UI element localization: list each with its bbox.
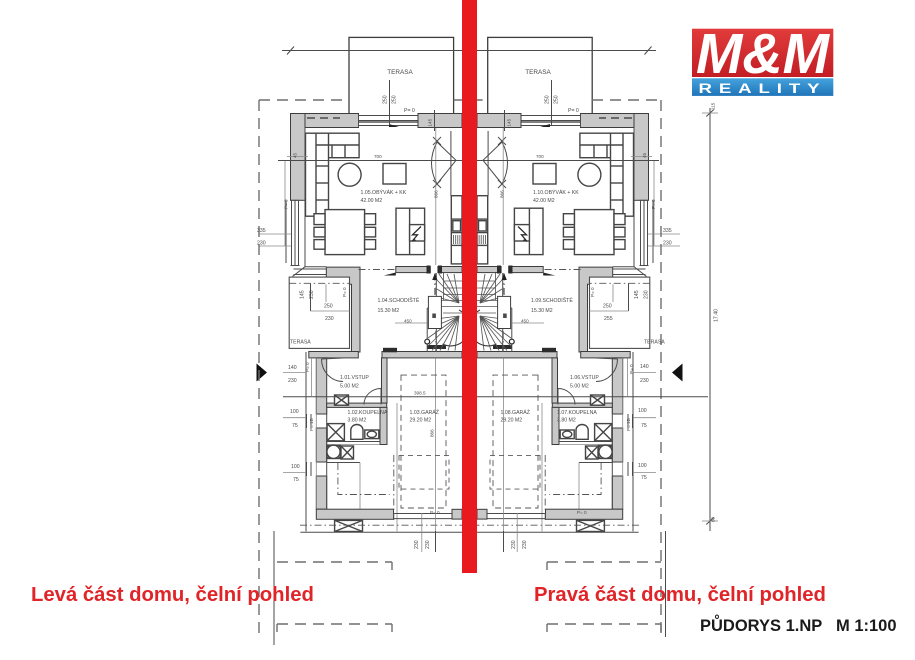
- svg-text:866: 866: [430, 429, 435, 437]
- svg-text:230: 230: [644, 290, 650, 299]
- svg-text:P= 0: P= 0: [590, 287, 595, 297]
- svg-text:P= 0: P= 0: [404, 108, 415, 114]
- svg-text:P= 0: P= 0: [629, 364, 634, 374]
- svg-text:P= 0: P= 0: [284, 199, 289, 209]
- svg-text:335: 335: [257, 228, 266, 234]
- svg-text:P= 0: P= 0: [430, 510, 440, 515]
- svg-text:60: 60: [711, 516, 716, 522]
- svg-text:3.80 M2: 3.80 M2: [348, 418, 367, 424]
- svg-text:1.04.SCHODIŠTĚ: 1.04.SCHODIŠTĚ: [378, 296, 420, 304]
- svg-text:TERASA: TERASA: [525, 69, 551, 76]
- svg-text:230: 230: [511, 540, 517, 549]
- svg-text:100: 100: [638, 408, 647, 414]
- svg-text:145: 145: [634, 290, 640, 299]
- svg-text:1.10.OBÝVÁK + KK: 1.10.OBÝVÁK + KK: [533, 189, 579, 196]
- svg-text:P= 0: P= 0: [651, 199, 656, 209]
- svg-text:866: 866: [434, 190, 439, 198]
- svg-text:145: 145: [300, 290, 306, 299]
- svg-text:230: 230: [325, 316, 334, 322]
- svg-text:5.00 M2: 5.00 M2: [340, 384, 359, 390]
- svg-text:P= 1B: P= 1B: [626, 418, 631, 431]
- svg-text:42.00 M2: 42.00 M2: [533, 198, 555, 204]
- svg-text:1.07.KOUPELNA: 1.07.KOUPELNA: [557, 410, 597, 416]
- svg-text:230: 230: [640, 378, 649, 384]
- svg-text:145: 145: [507, 118, 512, 126]
- svg-text:REALITY: REALITY: [699, 81, 827, 96]
- svg-text:100: 100: [290, 409, 299, 415]
- svg-text:75: 75: [292, 423, 298, 429]
- svg-text:230: 230: [288, 378, 297, 384]
- svg-text:Pravá část domu, čelní pohled: Pravá část domu, čelní pohled: [534, 584, 826, 606]
- svg-text:250: 250: [324, 304, 333, 310]
- svg-text:230: 230: [257, 241, 266, 247]
- svg-text:700: 700: [374, 154, 382, 159]
- svg-text:45: 45: [293, 152, 298, 158]
- svg-text:140: 140: [640, 364, 649, 370]
- svg-text:1.05.OBÝVÁK + KK: 1.05.OBÝVÁK + KK: [361, 189, 407, 196]
- svg-text:450: 450: [404, 319, 412, 324]
- svg-text:1.03.GARÁŽ: 1.03.GARÁŽ: [410, 408, 439, 416]
- svg-text:75: 75: [641, 423, 647, 429]
- svg-text:230: 230: [425, 540, 431, 549]
- svg-text:140: 140: [288, 365, 297, 371]
- svg-text:100: 100: [291, 464, 300, 470]
- svg-text:866: 866: [500, 190, 505, 198]
- svg-text:230: 230: [414, 540, 420, 549]
- svg-text:M&M: M&M: [696, 22, 830, 86]
- svg-text:29.20 M2: 29.20 M2: [501, 418, 523, 424]
- svg-text:250: 250: [554, 95, 560, 104]
- svg-text:42.00 M2: 42.00 M2: [361, 198, 383, 204]
- svg-text:100: 100: [638, 463, 647, 469]
- svg-text:1.06.VSTUP: 1.06.VSTUP: [570, 375, 599, 381]
- svg-text:PŮDORYS 1.NP M 1:100: PŮDORYS 1.NP M 1:100: [700, 615, 897, 635]
- svg-text:TERASA: TERASA: [644, 340, 665, 346]
- svg-text:1.01.VSTUP: 1.01.VSTUP: [340, 375, 369, 381]
- svg-text:Levá část domu, čelní pohled: Levá část domu, čelní pohled: [31, 584, 314, 606]
- svg-text:P= 1B: P= 1B: [309, 418, 314, 431]
- svg-text:1.09.SCHODIŠTĚ: 1.09.SCHODIŠTĚ: [531, 296, 573, 304]
- svg-text:250: 250: [383, 95, 389, 104]
- svg-text:1.08.GARÁŽ: 1.08.GARÁŽ: [501, 408, 530, 416]
- svg-text:15.30 M2: 15.30 M2: [531, 308, 553, 314]
- svg-text:450: 450: [521, 319, 529, 324]
- svg-text:P= 0: P= 0: [568, 108, 579, 114]
- svg-text:250: 250: [392, 95, 398, 104]
- svg-text:145: 145: [428, 118, 433, 126]
- svg-text:1.02.KOUPELNA: 1.02.KOUPELNA: [348, 410, 388, 416]
- svg-text:230: 230: [522, 540, 528, 549]
- svg-text:17.40: 17.40: [714, 309, 720, 322]
- svg-text:700: 700: [536, 154, 544, 159]
- svg-text:P= 0: P= 0: [577, 510, 587, 515]
- svg-text:115: 115: [711, 102, 716, 110]
- svg-text:75: 75: [293, 477, 299, 483]
- svg-text:15.30 M2: 15.30 M2: [378, 308, 400, 314]
- svg-text:5.00 M2: 5.00 M2: [570, 384, 589, 390]
- svg-text:TERASA: TERASA: [290, 340, 311, 346]
- svg-text:P= 0: P= 0: [342, 287, 347, 297]
- svg-text:45: 45: [642, 152, 647, 158]
- svg-text:29.20 M2: 29.20 M2: [410, 418, 432, 424]
- svg-text:255: 255: [604, 316, 613, 322]
- svg-text:230: 230: [663, 241, 672, 247]
- svg-text:250: 250: [545, 95, 551, 104]
- svg-text:P= 0: P= 0: [305, 362, 310, 372]
- svg-text:3.80 M2: 3.80 M2: [557, 418, 576, 424]
- svg-text:TERASA: TERASA: [387, 69, 413, 76]
- svg-text:75: 75: [641, 475, 647, 481]
- svg-text:250: 250: [603, 304, 612, 310]
- svg-text:398.5: 398.5: [414, 391, 426, 396]
- svg-text:335: 335: [663, 228, 672, 234]
- svg-text:230: 230: [309, 290, 315, 299]
